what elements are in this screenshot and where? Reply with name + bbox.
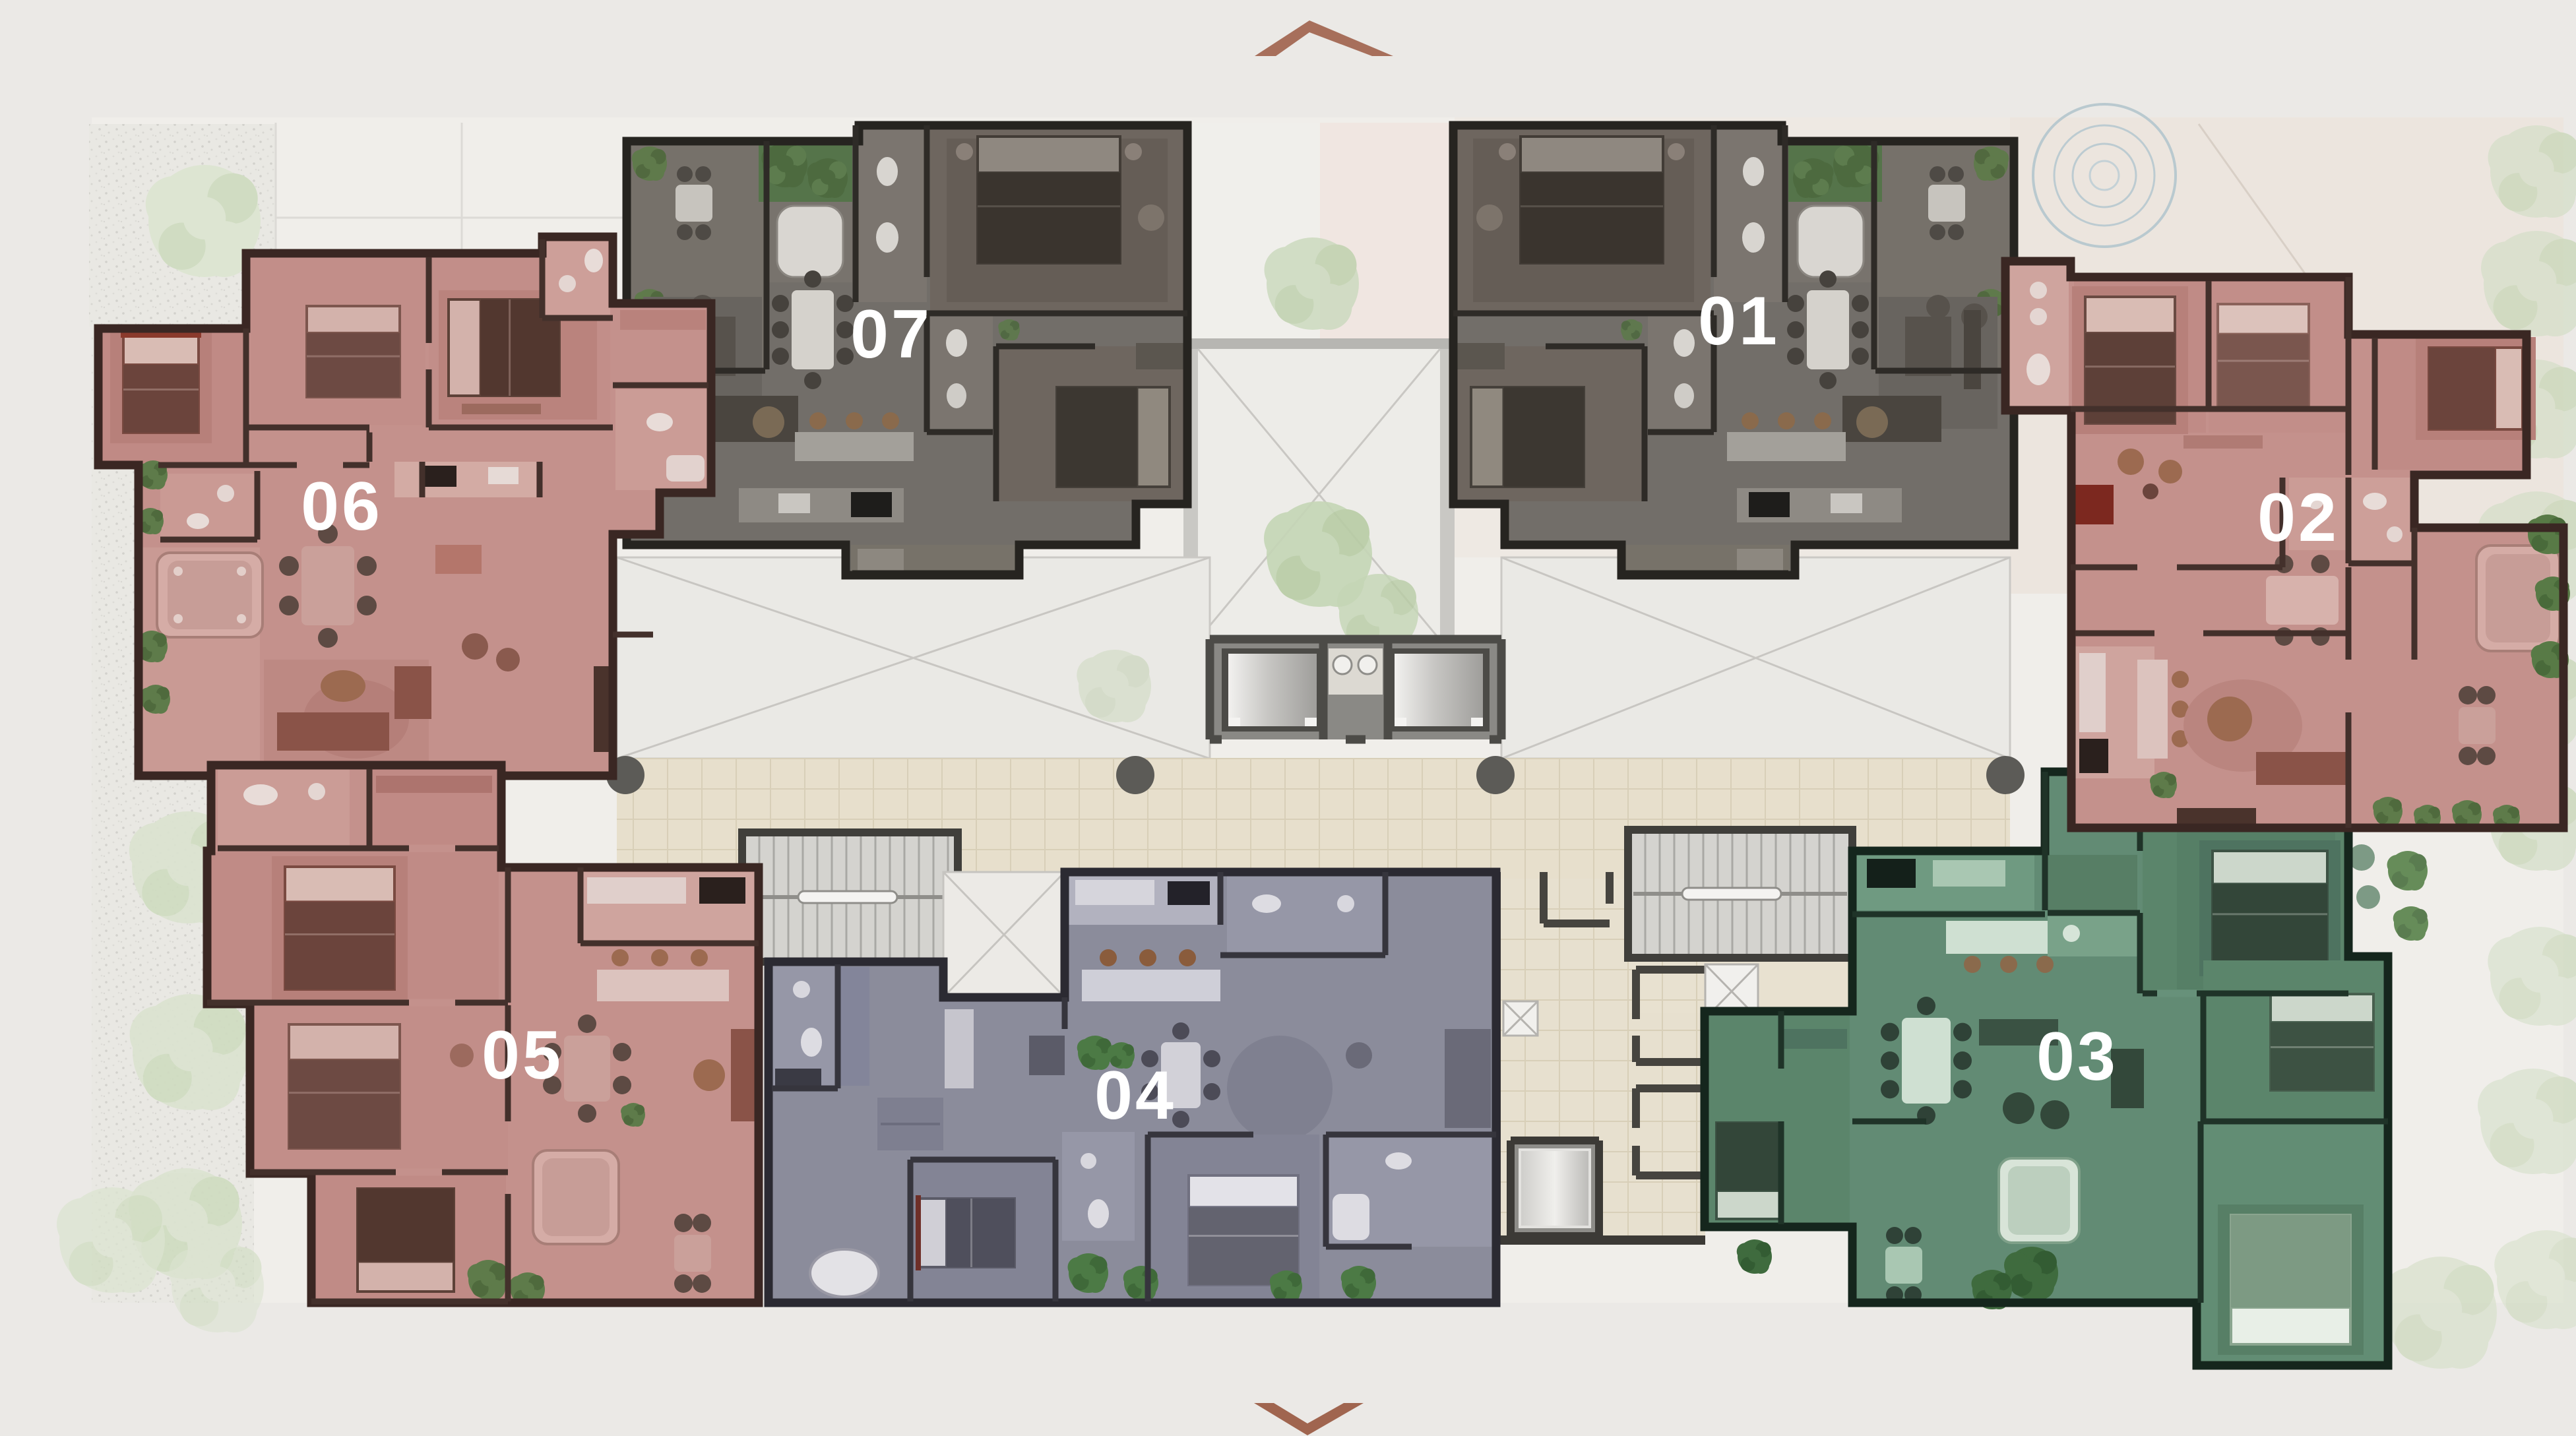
svg-text:04: 04 [1094, 1057, 1176, 1134]
svg-text:05: 05 [482, 1017, 563, 1094]
svg-text:02: 02 [2257, 480, 2339, 556]
svg-text:07: 07 [850, 296, 932, 373]
svg-text:03: 03 [2036, 1018, 2118, 1095]
svg-text:01: 01 [1698, 283, 1780, 359]
svg-text:06: 06 [301, 468, 383, 545]
